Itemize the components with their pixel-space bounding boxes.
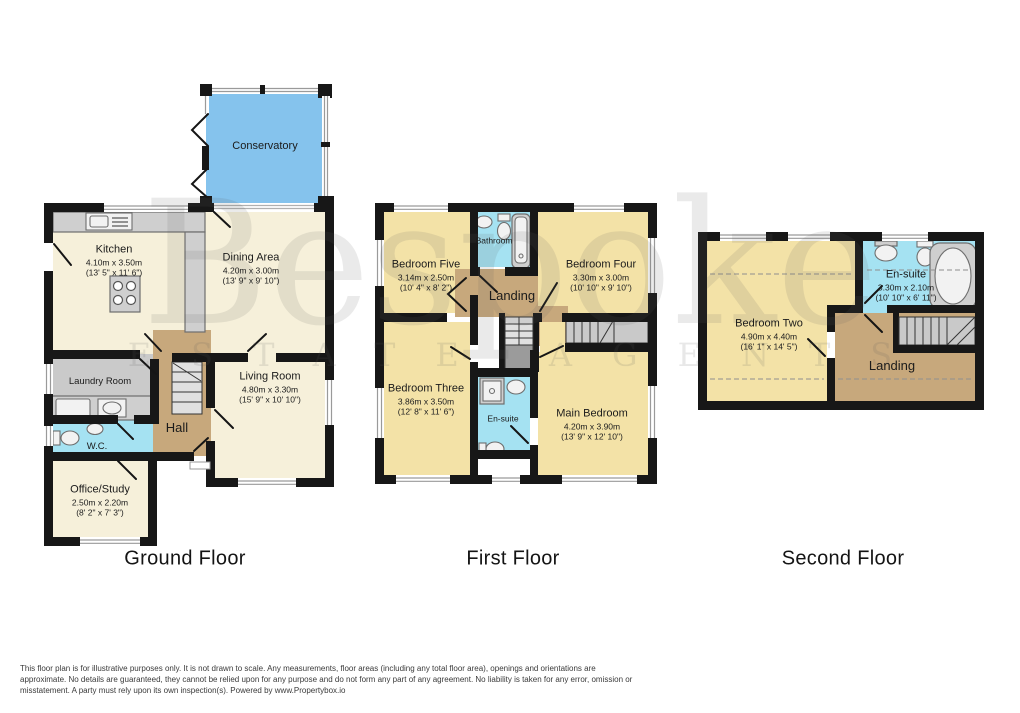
stove-icon	[110, 276, 140, 312]
room-label-hall: Hall	[166, 420, 188, 436]
second-floor-title: Second Floor	[782, 548, 905, 571]
room-label-conservatory: Conservatory	[232, 140, 297, 154]
room-label-bedroom-two: Bedroom Two 4.90m x 4.40m (16' 1" x 14' …	[735, 318, 803, 353]
room-label-kitchen: Kitchen 4.10m x 3.50m (13' 5" x 11' 6")	[86, 244, 142, 279]
kitchen-sink-icon	[86, 213, 132, 230]
second-ensuite-basin-icon	[875, 241, 897, 261]
room-label-living-room: Living Room 4.80m x 3.30m (15' 9" x 10' …	[239, 371, 301, 406]
room-label-first-ensuite: En-suite	[487, 414, 518, 425]
second-bathtub-icon	[930, 243, 976, 309]
room-label-wc: W.C.	[87, 441, 108, 453]
room-label-bathroom: Bathroom	[476, 236, 513, 247]
wc-toilet-icon	[53, 431, 79, 445]
room-label-bedroom-four: Bedroom Four 3.30m x 3.00m (10' 10" x 9'…	[566, 259, 636, 294]
second-floor-stairs-icon	[893, 313, 984, 353]
first-floor-title: First Floor	[466, 548, 559, 571]
disclaimer-text: This floor plan is for illustrative purp…	[20, 663, 740, 697]
disclaimer-line-2: approximate. No details are guaranteed, …	[20, 674, 740, 685]
shower-icon	[480, 378, 504, 404]
bathroom-basin-icon	[476, 216, 492, 228]
room-label-bedroom-three: Bedroom Three 3.86m x 3.50m (12' 8" x 11…	[388, 383, 464, 418]
room-label-second-ensuite: En-suite 3.30m x 2.10m (10' 10" x 6' 11"…	[875, 269, 936, 304]
disclaimer-line-1: This floor plan is for illustrative purp…	[20, 663, 740, 674]
ground-floor-title: Ground Floor	[124, 548, 245, 571]
hall-stairs-icon	[172, 362, 202, 414]
room-label-main-bedroom: Main Bedroom 4.20m x 3.90m (13' 9" x 12'…	[556, 408, 628, 443]
room-label-first-landing: Landing	[489, 288, 535, 304]
room-label-office-study: Office/Study 2.50m x 2.20m (8' 2" x 7' 3…	[70, 484, 130, 519]
room-label-second-landing: Landing	[869, 358, 915, 374]
floorplan-page: Bespoke ESTATE AGENTS Conservatory Kitch…	[0, 0, 1020, 713]
ensuite-basin-icon	[507, 380, 525, 394]
bathtub-icon	[512, 214, 530, 268]
wc-basin-icon	[87, 424, 103, 435]
second-floor-windows	[720, 232, 928, 241]
room-label-bedroom-five: Bedroom Five 3.14m x 2.50m (10' 4" x 8' …	[392, 259, 460, 294]
room-label-laundry: Laundry Room	[69, 376, 131, 388]
room-label-dining-area: Dining Area 4.20m x 3.00m (13' 9" x 9' 1…	[222, 252, 279, 287]
disclaimer-line-3: misstatement. A party must rely upon its…	[20, 685, 740, 696]
